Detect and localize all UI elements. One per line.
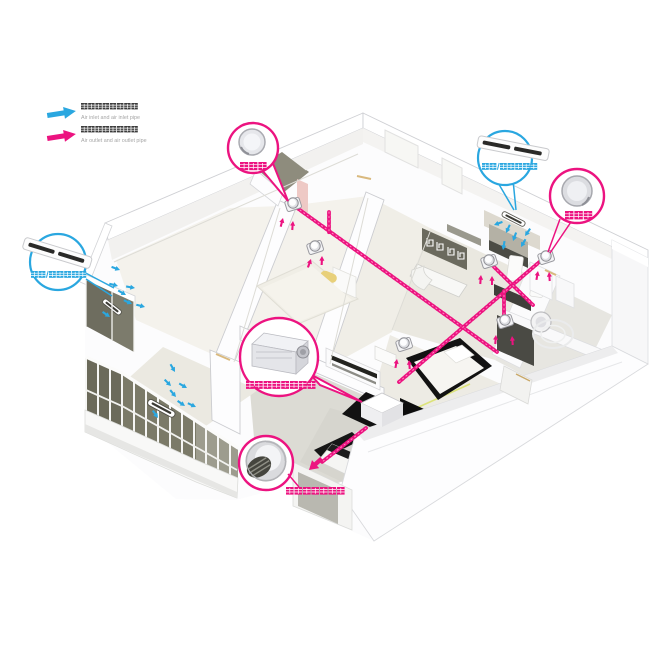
svg-text:Air inlet and air inlet pipe: Air inlet and air inlet pipe [81,115,140,121]
svg-text:Air outlet and air outlet pipe: Air outlet and air outlet pipe [81,138,147,144]
